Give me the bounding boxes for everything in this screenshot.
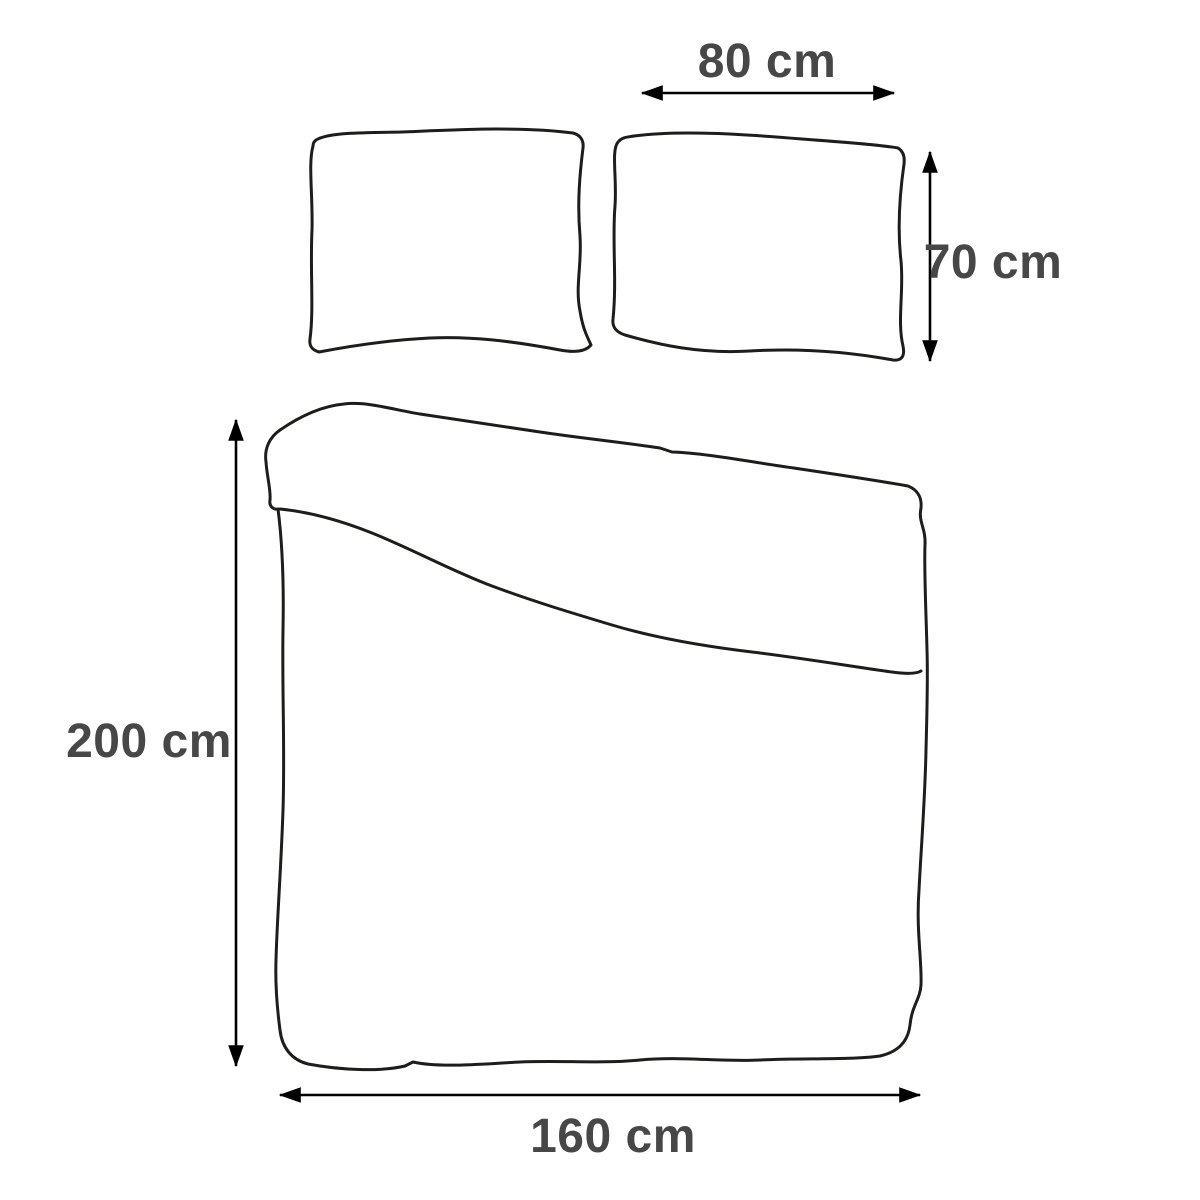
pillow-width-label: 80 cm bbox=[698, 35, 837, 88]
duvet-height-label: 200 cm bbox=[66, 715, 232, 768]
diagram-svg: 80 cm 70 cm 200 cm 160 cm bbox=[0, 0, 1200, 1200]
duvet-outline bbox=[266, 403, 928, 1069]
line-art-group bbox=[266, 129, 928, 1070]
pillow-height-label: 70 cm bbox=[924, 236, 1063, 289]
dimension-arrows-group bbox=[236, 93, 930, 1095]
pillow-left-outline bbox=[310, 129, 591, 352]
duvet-fold-line bbox=[280, 509, 921, 673]
dimension-labels-group: 80 cm 70 cm 200 cm 160 cm bbox=[66, 35, 1062, 1163]
duvet-width-label: 160 cm bbox=[530, 1110, 696, 1163]
pillow-right-outline bbox=[613, 133, 904, 360]
bedding-dimensions-diagram: 80 cm 70 cm 200 cm 160 cm bbox=[0, 0, 1200, 1200]
